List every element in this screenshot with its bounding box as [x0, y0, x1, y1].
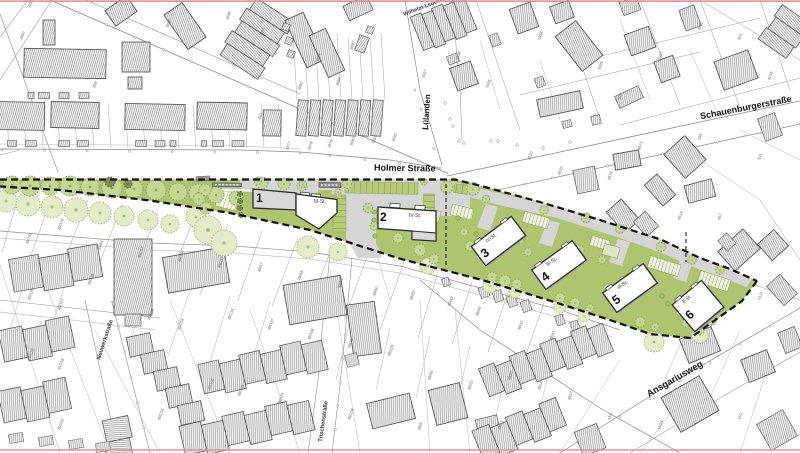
svg-text:Holmer Straße: Holmer Straße: [374, 163, 436, 174]
svg-text:1: 1: [256, 191, 263, 205]
svg-text:IV-St.: IV-St.: [409, 213, 421, 219]
svg-text:2: 2: [380, 210, 387, 224]
svg-text:III-St.: III-St.: [314, 199, 326, 205]
